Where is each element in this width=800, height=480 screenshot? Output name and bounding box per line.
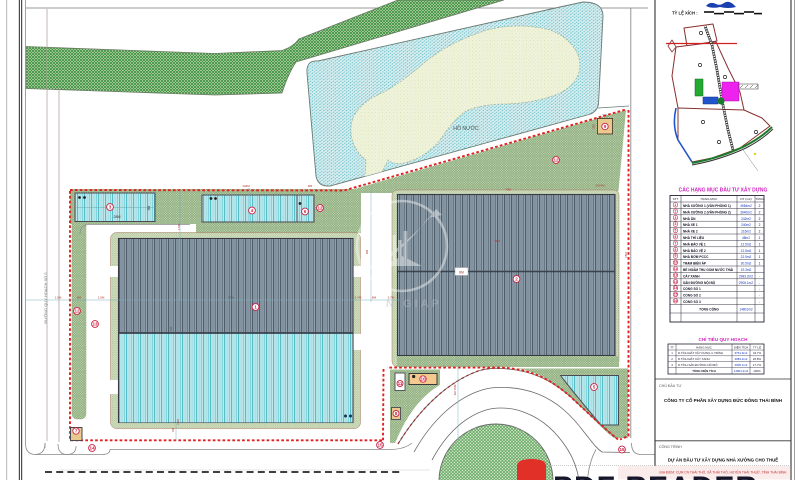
svg-text:8: 8 (675, 248, 677, 252)
svg-text:6: 6 (304, 209, 307, 214)
svg-text:SÂN ĐƯỜNG NỘI BỘ: SÂN ĐƯỜNG NỘI BỘ (683, 280, 716, 285)
svg-text:-: - (759, 274, 760, 278)
svg-text:NHÀ BẢO VỆ 2: NHÀ BẢO VỆ 2 (683, 248, 706, 253)
svg-text:14: 14 (89, 446, 95, 451)
svg-text:8M: 8M (372, 296, 377, 300)
svg-text:ĐƯỜNG QUY HOẠCH SỐ 5: ĐƯỜNG QUY HOẠCH SỐ 5 (43, 272, 48, 324)
svg-text:15: 15 (674, 293, 678, 297)
svg-text:13: 13 (92, 322, 98, 327)
svg-text:NHÀ XƯỞNG 1 (VĂN PHÒNG 1): NHÀ XƯỞNG 1 (VĂN PHÒNG 1) (683, 203, 731, 208)
svg-text:CỔNG SỐ 1: CỔNG SỐ 1 (683, 286, 701, 291)
svg-text:2905.1m2: 2905.1m2 (735, 363, 748, 367)
svg-text:2983.2m2: 2983.2m2 (739, 274, 753, 278)
svg-text:11: 11 (398, 381, 403, 386)
svg-text:100%: 100% (753, 369, 761, 373)
svg-text:9761.9m2: 9761.9m2 (735, 351, 748, 355)
svg-text:7: 7 (675, 241, 677, 245)
svg-text:CÔNG TRÌNH: CÔNG TRÌNH (659, 444, 682, 449)
svg-text:PDF READER: PDF READER (553, 471, 758, 480)
svg-text:12.5m2: 12.5m2 (741, 242, 752, 246)
svg-text:7: 7 (75, 429, 78, 434)
svg-text:4M 15M: 4M 15M (453, 384, 457, 395)
svg-text:14801.2m2: 14801.2m2 (734, 369, 749, 373)
svg-text:1: 1 (254, 305, 257, 310)
svg-text:2983.2m2: 2983.2m2 (735, 357, 748, 361)
svg-text:79M: 79M (494, 239, 500, 243)
svg-text:14801m2: 14801m2 (739, 307, 753, 311)
svg-text:22.5m2: 22.5m2 (741, 255, 752, 259)
svg-text:216m2: 216m2 (741, 230, 751, 234)
svg-text:3: 3 (109, 205, 112, 210)
svg-text:-: - (759, 287, 760, 291)
svg-text:87M: 87M (228, 296, 234, 300)
svg-text:12: 12 (74, 309, 80, 314)
svg-text:15M: 15M (176, 419, 180, 425)
svg-text:D.TÍCH ĐẤT XÂY DỰNG C.TRÌNH: D.TÍCH ĐẤT XÂY DỰNG C.TRÌNH (678, 351, 723, 355)
svg-text:STT: STT (673, 197, 679, 201)
svg-text:6: 6 (675, 235, 677, 239)
svg-text:HỒ NƯỚC: HỒ NƯỚC (453, 125, 479, 132)
svg-text:DT (m2): DT (m2) (740, 197, 751, 201)
svg-text:1.5M: 1.5M (55, 296, 62, 300)
svg-text:30.5m2: 30.5m2 (741, 262, 752, 266)
svg-text:3: 3 (675, 216, 677, 220)
svg-text:TỔNG CỘNG: TỔNG CỘNG (699, 306, 719, 311)
svg-text:4: 4 (251, 208, 254, 213)
svg-text:2: 2 (515, 277, 518, 282)
svg-text:2: 2 (759, 210, 761, 214)
svg-text:NHÀ XE 2: NHÀ XE 2 (683, 229, 698, 234)
svg-text:20.8%: 20.8% (753, 357, 762, 361)
svg-text:4: 4 (675, 222, 677, 226)
svg-text:D.TÍCH ĐẤT CÂY XANH: D.TÍCH ĐẤT CÂY XANH (678, 357, 710, 361)
svg-text:2: 2 (759, 204, 761, 208)
svg-text:1: 1 (759, 262, 761, 266)
svg-text:104M: 104M (242, 184, 250, 188)
svg-text:2: 2 (675, 209, 677, 213)
svg-text:HẠNG MỤC: HẠNG MỤC (696, 345, 712, 349)
svg-text:CÔNG TY CỔ PHẦN XÂY DỰNG ĐỨC Đ: CÔNG TY CỔ PHẦN XÂY DỰNG ĐỨC ĐÔNG THÁI B… (664, 396, 782, 403)
svg-text:1: 1 (675, 203, 677, 207)
svg-text:TỲ LỆ XÍCH :: TỲ LỆ XÍCH : (672, 11, 698, 16)
svg-text:43.7%: 43.7% (753, 351, 762, 355)
svg-text:TỔNG DIỆN TÍCH: TỔNG DIỆN TÍCH (692, 368, 716, 373)
svg-text:CÁC HẠNG MỤC ĐẦU TƯ XÂY DỰNG: CÁC HẠNG MỤC ĐẦU TƯ XÂY DỰNG (679, 187, 768, 194)
svg-text:17.7%: 17.7% (753, 363, 762, 367)
svg-text:9: 9 (675, 254, 677, 258)
svg-text:NHÀ THÍ LIỆU: NHÀ THÍ LIỆU (683, 235, 705, 240)
svg-text:-: - (759, 281, 760, 285)
svg-text:NHÀ BƠM PCCC: NHÀ BƠM PCCC (683, 254, 709, 259)
svg-text:5: 5 (675, 229, 677, 233)
svg-text:CHỈ TIÊU QUY HOẠCH: CHỈ TIÊU QUY HOẠCH (699, 335, 749, 342)
svg-text:14: 14 (674, 286, 678, 290)
svg-text:CỔNG SỐ 2: CỔNG SỐ 2 (683, 293, 701, 298)
svg-text:9: 9 (604, 124, 607, 129)
svg-text:DIỆN TÍCH: DIỆN TÍCH (734, 344, 748, 349)
svg-text:2: 2 (759, 230, 761, 234)
svg-text:1: 1 (759, 255, 761, 259)
svg-text:10: 10 (674, 261, 678, 265)
svg-text:15: 15 (377, 443, 383, 448)
svg-text:13: 13 (674, 280, 678, 284)
svg-text:48m2: 48m2 (742, 236, 750, 240)
svg-text:12: 12 (553, 158, 559, 163)
svg-text:7.5M: 7.5M (169, 326, 173, 333)
svg-text:NHÀ ĂN: NHÀ ĂN (683, 216, 696, 221)
svg-text:12.5m2: 12.5m2 (741, 249, 752, 253)
svg-text:3940m2: 3940m2 (740, 210, 752, 214)
svg-text:N GIAP: N GIAP (386, 298, 442, 310)
svg-text:TỲ LỆ: TỲ LỆ (753, 344, 761, 349)
svg-text:2905.1m2: 2905.1m2 (739, 281, 753, 285)
svg-text:240m2: 240m2 (741, 223, 751, 227)
svg-text:4984m2: 4984m2 (740, 204, 752, 208)
svg-text:TRẠM BIẾN ÁP: TRẠM BIẾN ÁP (683, 261, 707, 266)
svg-text:11: 11 (674, 267, 678, 271)
svg-text:15M: 15M (592, 124, 596, 130)
svg-text:28M: 28M (114, 215, 121, 219)
svg-text:1.5M: 1.5M (98, 296, 105, 300)
svg-text:D.TÍCH SÂN ĐƯỜNG NỘI BỘ: D.TÍCH SÂN ĐƯỜNG NỘI BỘ (678, 362, 718, 367)
svg-text:BỂ NGẦM THU GOM NƯỚC THẢI: BỂ NGẦM THU GOM NƯỚC THẢI (683, 267, 733, 272)
svg-text:2: 2 (759, 223, 761, 227)
svg-text:8: 8 (395, 411, 398, 416)
svg-text:2M 4M: 2M 4M (595, 184, 605, 188)
svg-text:2.7M: 2.7M (355, 296, 362, 300)
svg-text:16: 16 (619, 447, 625, 452)
svg-text:NHÀ XƯỞNG 2 (VĂN PHÒNG 2): NHÀ XƯỞNG 2 (VĂN PHÒNG 2) (683, 209, 731, 214)
svg-text:NHÀ BẢO VỆ 1: NHÀ BẢO VỆ 1 (683, 241, 706, 246)
svg-text:8M: 8M (308, 184, 313, 188)
svg-text:242m2: 242m2 (741, 217, 751, 221)
svg-text:CỔNG SỐ 3: CỔNG SỐ 3 (683, 299, 701, 304)
svg-text:HẠNG MỤC: HẠNG MỤC (701, 197, 719, 201)
svg-text:9M: 9M (147, 205, 151, 210)
svg-text:5: 5 (593, 385, 596, 390)
svg-text:8M: 8M (459, 271, 464, 275)
svg-text:DỰ ÁN ĐẦU TƯ XÂY DỰNG NHÀ XƯỞN: DỰ ÁN ĐẦU TƯ XÂY DỰNG NHÀ XƯỞNG CHO THUÊ (668, 458, 779, 463)
svg-text:1: 1 (759, 242, 761, 246)
svg-text:-: - (759, 294, 760, 298)
svg-text:-: - (759, 300, 760, 304)
svg-text:10: 10 (420, 377, 426, 382)
svg-text:79M: 79M (505, 188, 511, 192)
svg-text:1: 1 (759, 236, 761, 240)
svg-text:19.3m2: 19.3m2 (741, 268, 752, 272)
svg-text:2: 2 (759, 217, 761, 221)
svg-text:4M: 4M (171, 427, 175, 432)
svg-text:NHÀ XE 1: NHÀ XE 1 (683, 222, 698, 227)
svg-text:16: 16 (674, 299, 678, 303)
svg-text:12: 12 (674, 273, 678, 277)
svg-text:8M: 8M (77, 296, 82, 300)
svg-text:8M: 8M (365, 249, 369, 254)
svg-text:15M: 15M (624, 252, 628, 258)
svg-text:CÂY XANH: CÂY XANH (683, 273, 700, 278)
svg-text:1: 1 (759, 249, 761, 253)
svg-text:TT: TT (670, 345, 674, 349)
svg-text:CHỦ ĐẦU TƯ: CHỦ ĐẦU TƯ (659, 383, 682, 388)
svg-text:12: 12 (317, 206, 323, 211)
svg-text:TẦNG: TẦNG (755, 197, 764, 201)
svg-text:1.5M: 1.5M (177, 223, 181, 230)
